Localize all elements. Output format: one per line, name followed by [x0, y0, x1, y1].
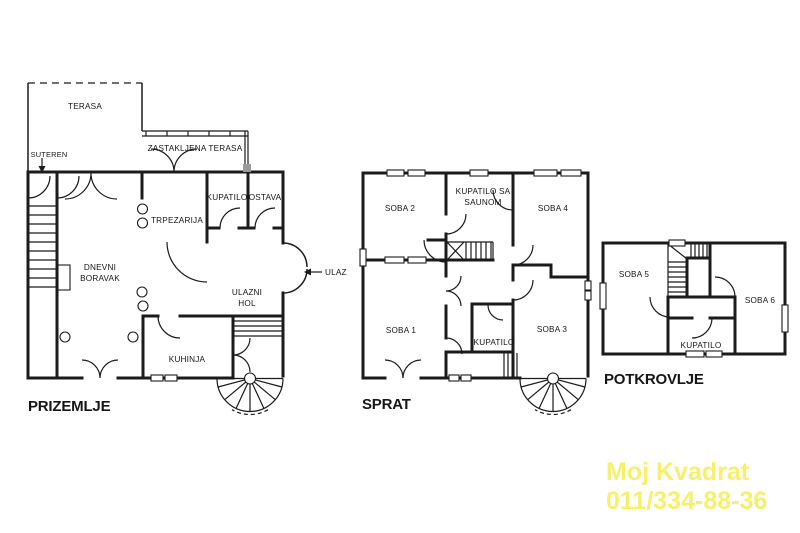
staircase-left	[28, 206, 57, 287]
room-label-kuhinja: KUHINJA	[169, 355, 206, 364]
room-label-zastakljena-terasa: ZASTAKLJENA TERASA	[148, 144, 243, 153]
room-label-ulaz: ULAZ	[325, 268, 347, 277]
spiral-staircase	[520, 373, 586, 415]
room-label-soba2: SOBA 2	[385, 204, 416, 213]
entrance-arch	[283, 243, 307, 293]
room-label-soba3: SOBA 3	[537, 325, 568, 334]
room-label-soba1: SOBA 1	[386, 326, 417, 335]
room-label-ostava: OSTAVA	[249, 193, 282, 202]
floor-title-sprat: SPRAT	[362, 396, 411, 413]
staircase	[447, 242, 517, 377]
floorplan-canvas: TERASA SUTEREN ZASTAKLJENA TERASA KUPATI…	[0, 0, 800, 533]
room-label-soba4: SOBA 4	[538, 204, 569, 213]
room-label-suteren: SUTEREN	[31, 150, 68, 159]
room-label-trpezarija: TRPEZARIJA	[151, 216, 203, 225]
floor-plan-potkrovlje: SOBA 5 SOBA 6 KUPATILO POTKROVLJE	[600, 240, 788, 388]
floor-title-prizemlje: PRIZEMLJE	[28, 398, 111, 415]
chimney-mark	[243, 164, 251, 172]
watermark: Moj Kvadrat 011/334-88-36	[606, 458, 767, 515]
floorplan-page: TERASA SUTEREN ZASTAKLJENA TERASA KUPATI…	[0, 0, 800, 533]
room-label-kupatilo-prizemlje: KUPATILO	[207, 193, 248, 202]
room-label-soba6: SOBA 6	[745, 296, 776, 305]
room-label-hol: HOL	[238, 299, 256, 308]
room-label-dnevni: DNEVNI	[84, 263, 116, 272]
room-label-ulazni: ULAZNI	[232, 288, 262, 297]
room-label-soba5: SOBA 5	[619, 270, 650, 279]
floor-title-potkrovlje: POTKROVLJE	[604, 371, 704, 388]
room-label-kupatilo-sa: KUPATILO SA	[456, 187, 511, 196]
room-label-kupatilo-sprat: KUPATILO	[474, 338, 515, 347]
hall-stairs	[233, 321, 283, 336]
floor-plan-sprat: SOBA 2 KUPATILO SA SAUNOM SOBA 4 SOBA 1 …	[360, 170, 591, 415]
door-arcs	[385, 190, 533, 378]
door-arcs	[28, 149, 275, 378]
room-label-terasa: TERASA	[68, 102, 102, 111]
room-label-boravak: BORAVAK	[80, 274, 120, 283]
room-label-saunom: SAUNOM	[464, 198, 501, 207]
watermark-line2: 011/334-88-36	[606, 487, 767, 515]
door-arcs	[650, 277, 735, 338]
watermark-line1: Moj Kvadrat	[606, 458, 750, 486]
columns	[60, 204, 148, 342]
fireplace	[58, 265, 70, 290]
room-label-kupatilo-potkrovlje: KUPATILO	[681, 341, 722, 350]
floor-plan-prizemlje: TERASA SUTEREN ZASTAKLJENA TERASA KUPATI…	[28, 83, 347, 415]
